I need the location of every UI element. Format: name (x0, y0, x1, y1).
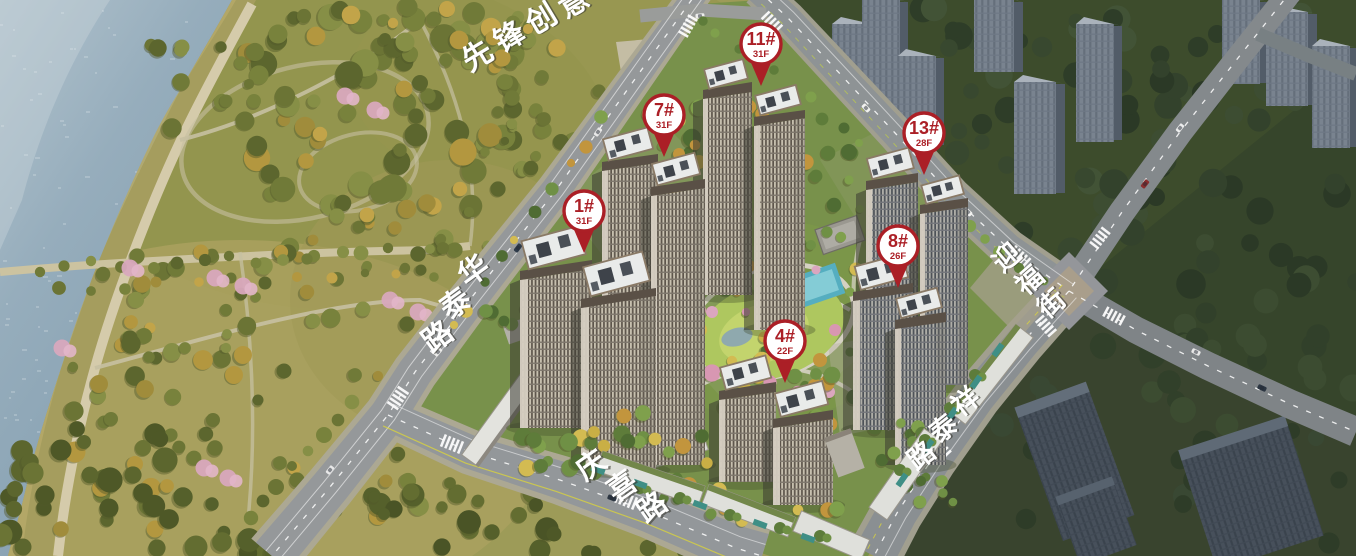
svg-text:13#: 13# (909, 118, 939, 138)
svg-text:22F: 22F (777, 346, 794, 357)
svg-text:28F: 28F (916, 138, 933, 149)
svg-text:4#: 4# (775, 326, 795, 346)
svg-text:7#: 7# (654, 100, 674, 120)
svg-text:31F: 31F (753, 49, 770, 60)
svg-text:8#: 8# (888, 231, 908, 251)
svg-text:1#: 1# (574, 196, 594, 216)
svg-text:31F: 31F (656, 120, 673, 131)
svg-text:26F: 26F (890, 251, 907, 262)
svg-text:31F: 31F (576, 216, 593, 227)
svg-text:11#: 11# (746, 29, 775, 49)
